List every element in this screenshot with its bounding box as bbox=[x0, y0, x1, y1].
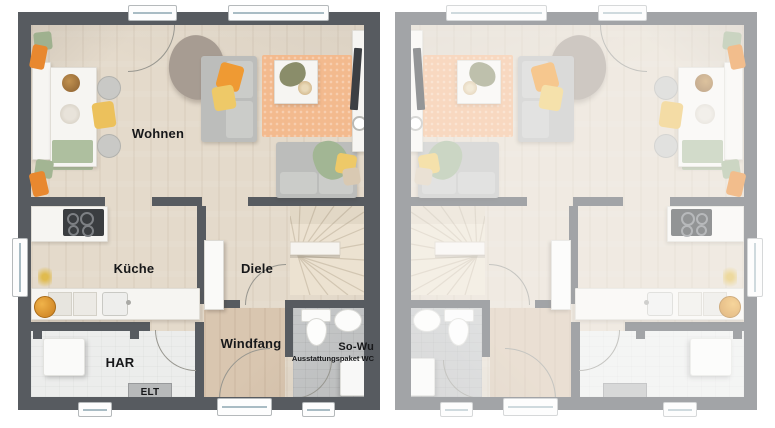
window bbox=[598, 5, 647, 21]
room-label-wohnen: Wohnen bbox=[118, 126, 198, 141]
room-label-so-wu: So-Wu bbox=[304, 341, 374, 353]
window bbox=[747, 238, 763, 297]
unit-right: ELT Wohnen Küche Diele Windfang HAR So-W… bbox=[395, 12, 757, 410]
room-label-kueche: Küche bbox=[96, 261, 172, 276]
window bbox=[440, 402, 473, 417]
window bbox=[78, 402, 112, 417]
unit-left: ELT Wohnen Küche Diele Windfang HAR So-W… bbox=[18, 12, 380, 410]
window bbox=[12, 238, 28, 297]
entrance-door bbox=[217, 398, 272, 416]
entrance-door bbox=[503, 398, 558, 416]
floorplan-canvas: ELT Wohnen Küche Diele Windfang HAR So-W… bbox=[0, 0, 775, 428]
room-label-diele: Diele bbox=[222, 261, 292, 276]
window bbox=[302, 402, 335, 417]
window bbox=[663, 402, 697, 417]
exterior-walls bbox=[395, 12, 757, 410]
window bbox=[228, 5, 329, 21]
window bbox=[128, 5, 177, 21]
room-sublabel-so-wu: Ausstattungspaket WC bbox=[258, 354, 374, 363]
room-label-har: HAR bbox=[90, 355, 150, 370]
room-label-windfang: Windfang bbox=[211, 336, 291, 351]
window bbox=[446, 5, 547, 21]
